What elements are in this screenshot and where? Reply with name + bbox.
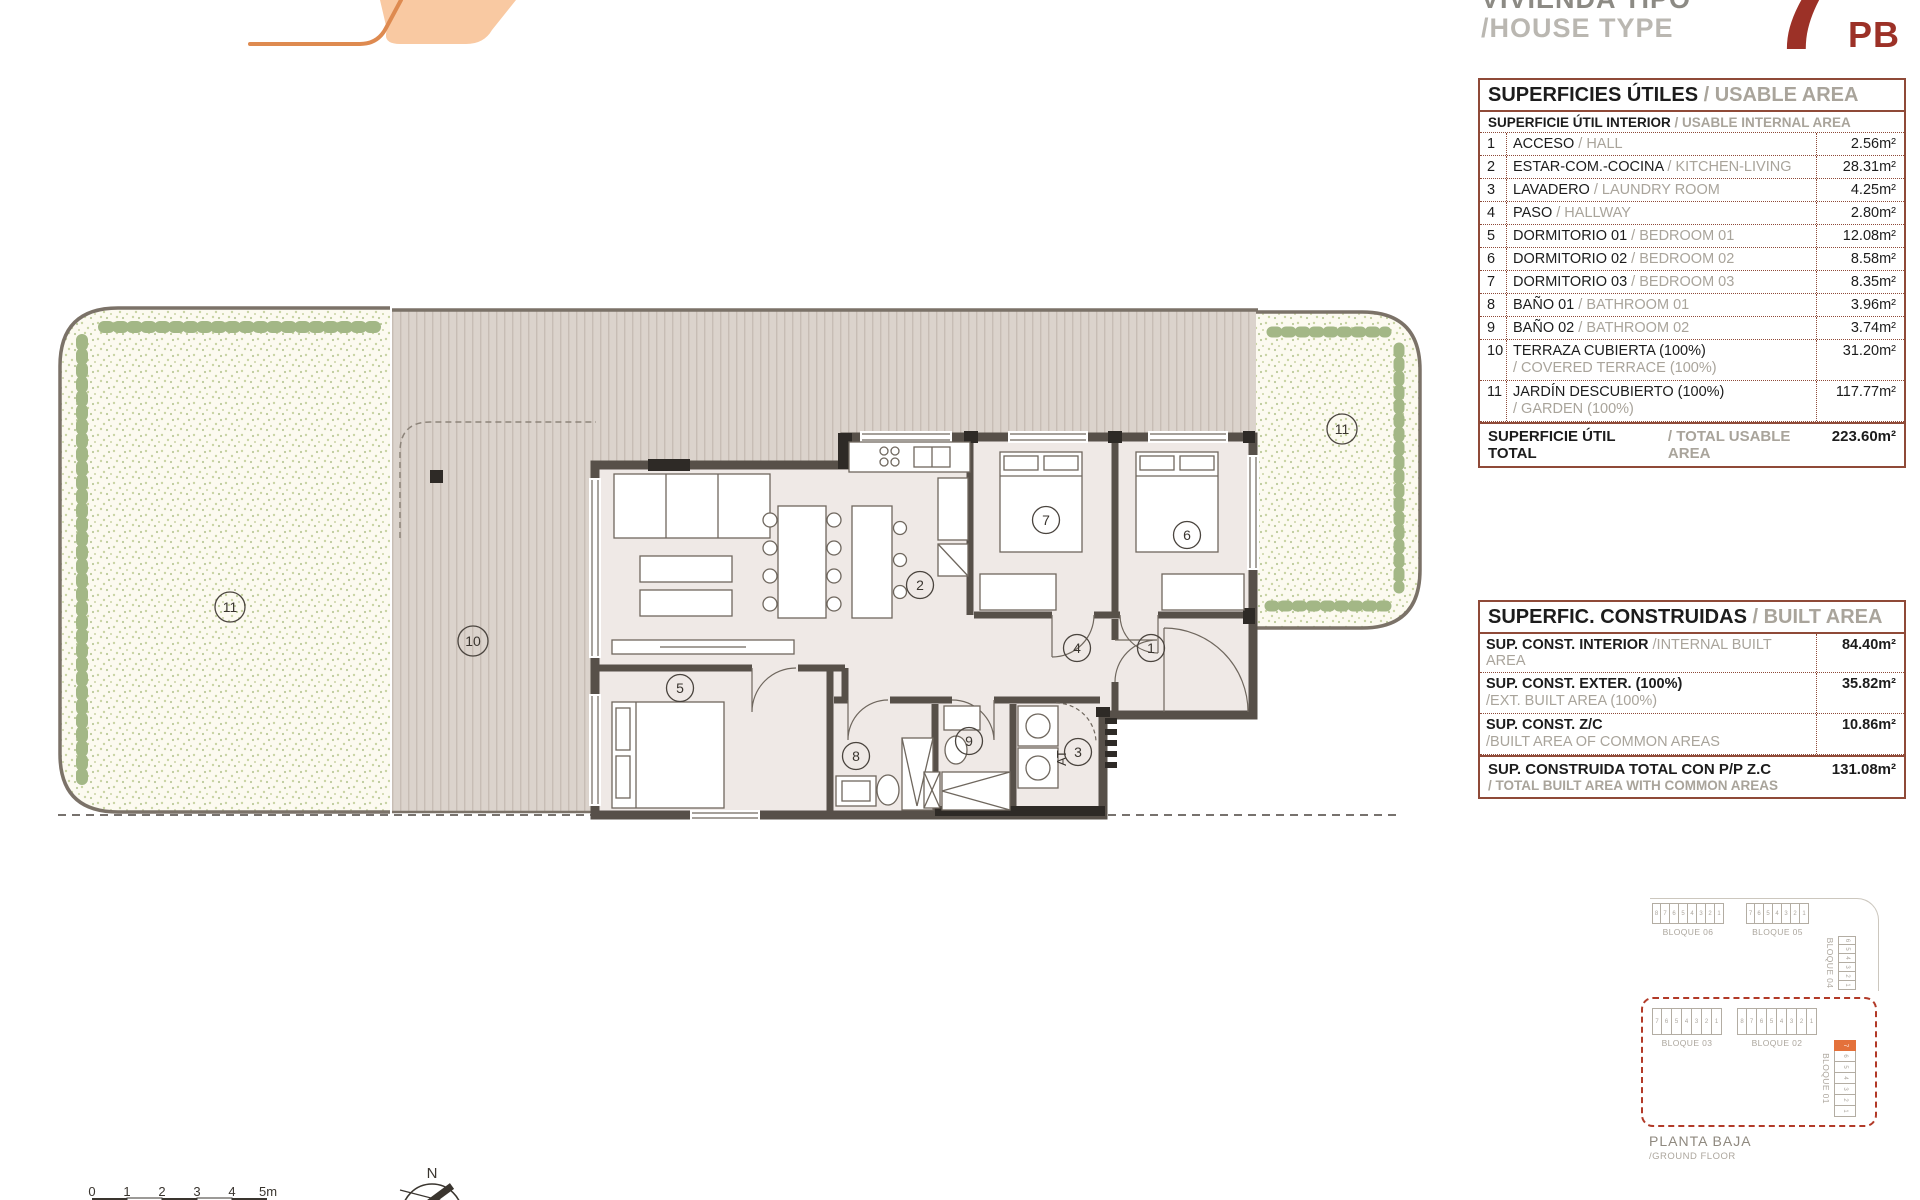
keyplan-bloque-01: 7654321 BLOQUE 01	[1821, 1040, 1856, 1117]
keyplan-unit-cell: 2	[1834, 1095, 1856, 1106]
keyplan-unit-cell: 7	[1747, 1008, 1757, 1035]
table-row: 7DORMITORIO 03 / BEDROOM 038.35m²	[1480, 271, 1904, 294]
keyplan-unit-cell: 4	[1773, 903, 1782, 924]
toilet-8	[877, 775, 899, 805]
sofa	[614, 474, 770, 538]
keyplan-unit-cell: 8	[1652, 903, 1661, 924]
keyplan-bloque-02: 87654321 BLOQUE 02	[1737, 1008, 1817, 1048]
keyplan-unit-cell: 6	[1662, 1008, 1672, 1035]
svg-text:5m: 5m	[259, 1184, 277, 1199]
keyplan-unit-cell: 2	[1706, 903, 1715, 924]
svg-text:4: 4	[1073, 640, 1081, 656]
usable-area-table: SUPERFICIES ÚTILES / USABLE AREA SUPERFI…	[1478, 78, 1906, 468]
keyplan-unit-cell: 6	[1757, 1008, 1767, 1035]
svg-text:7: 7	[1042, 512, 1050, 528]
step-hatch	[1105, 762, 1117, 768]
keyplan-unit-cell: 7	[1652, 1008, 1662, 1035]
keyplan-unit-cell: 1	[1800, 903, 1809, 924]
keyplan-unit-cell: 3	[1834, 1084, 1856, 1095]
hob-burner	[880, 447, 888, 455]
keyplan-unit-cell: 3	[1692, 1008, 1702, 1035]
table-row: SUP. CONST. EXTER. (100%)/EXT. BUILT ARE…	[1480, 673, 1904, 714]
keyplan-unit-cell: 7	[1661, 903, 1670, 924]
keyplan-unit-cell: 2	[1702, 1008, 1712, 1035]
svg-text:9: 9	[965, 733, 973, 749]
step-hatch	[1105, 718, 1117, 724]
svg-text:11: 11	[1335, 421, 1350, 437]
garden-right	[1256, 312, 1420, 628]
keyplan-unit-cell: 3	[1697, 903, 1706, 924]
keyplan-floor-label-es: PLANTA BAJA	[1649, 1133, 1752, 1149]
keyplan-unit-cell: 4	[1834, 1073, 1856, 1084]
keyplan-unit-cell: 2	[1797, 1008, 1807, 1035]
built-total-row: SUP. CONSTRUIDA TOTAL CON P/P Z.C131.08m…	[1480, 755, 1904, 797]
dwelling: AT	[589, 431, 1259, 820]
keyplan-unit-cell: 6	[1755, 903, 1764, 924]
table-row: SUP. CONST. Z/C/BUILT AREA OF COMMON ARE…	[1480, 714, 1904, 755]
usable-total-row: SUPERFICIE ÚTIL TOTAL/ TOTAL USABLE AREA…	[1480, 422, 1904, 466]
keyplan-unit-cell: 4	[1838, 954, 1856, 963]
shower-9	[942, 772, 1010, 810]
keyplan-unit-cell: 1	[1834, 1106, 1856, 1117]
wardrobe-7	[980, 574, 1056, 610]
table-row: 2ESTAR-COM.-COCINA / KITCHEN-LIVING28.31…	[1480, 156, 1904, 179]
table-row: 5DORMITORIO 01 / BEDROOM 0112.08m²	[1480, 225, 1904, 248]
keyplan-unit-cell: 5	[1672, 1008, 1682, 1035]
table-row: 8BAÑO 01 / BATHROOM 013.96m²	[1480, 294, 1904, 317]
keyplan-unit-cell: 4	[1777, 1008, 1787, 1035]
svg-text:5: 5	[676, 680, 684, 696]
keyplan-bloque-04: 654321 BLOQUE 04	[1825, 936, 1856, 990]
svg-text:2: 2	[916, 577, 924, 593]
keyplan-unit-cell: 7	[1834, 1040, 1856, 1051]
table-row: 10TERRAZA CUBIERTA (100%)/ COVERED TERRA…	[1480, 340, 1904, 381]
svg-text:4: 4	[228, 1184, 235, 1199]
keyplan-unit-cell: 1	[1712, 1008, 1722, 1035]
svg-text:11: 11	[223, 599, 238, 615]
built-area-table: SUPERFIC. CONSTRUIDAS / BUILT AREA SUP. …	[1478, 600, 1906, 799]
table-row: 3LAVADERO / LAUNDRY ROOM4.25m²	[1480, 179, 1904, 202]
svg-text:8: 8	[852, 748, 860, 764]
house-type-number: 7	[1768, 0, 1841, 70]
step-hatch	[1105, 729, 1117, 735]
svg-text:1: 1	[1147, 640, 1155, 656]
svg-text:1: 1	[123, 1184, 130, 1199]
tall-units	[938, 478, 968, 540]
table-row: 9BAÑO 02 / BATHROOM 023.74m²	[1480, 317, 1904, 340]
pergola-post	[430, 470, 443, 483]
keyplan-unit-cell: 4	[1688, 903, 1697, 924]
floor-code: PB	[1848, 14, 1900, 56]
keyplan-unit-cell: 5	[1764, 903, 1773, 924]
sink-9	[944, 706, 980, 730]
keyplan-unit-cell: 5	[1834, 1062, 1856, 1073]
svg-text:3: 3	[193, 1184, 200, 1199]
garden-left	[60, 308, 390, 812]
plan-sheet: AT 1 2 3 4 5 6 7 8 9 10 11 11 0 1 2 3 4 …	[0, 0, 1920, 1200]
keyplan-unit-cell: 5	[1838, 945, 1856, 954]
hob-burner	[880, 458, 888, 466]
dining-table	[778, 506, 826, 618]
scale-bar: 0 1 2 3 4 5m	[88, 1184, 277, 1200]
table-row: SUP. CONST. INTERIOR /INTERNAL BUILT ARE…	[1480, 634, 1904, 673]
usable-table-subtitle: SUPERFICIE ÚTIL INTERIOR / USABLE INTERN…	[1480, 112, 1904, 133]
logo	[250, 0, 516, 44]
keyplan-unit-cell: 3	[1782, 903, 1791, 924]
keyplan-unit-cell: 2	[1791, 903, 1800, 924]
keyplan-unit-cell: 6	[1834, 1051, 1856, 1062]
keyplan-floor-label-en: /GROUND FLOOR	[1649, 1151, 1736, 1162]
built-table-title: SUPERFIC. CONSTRUIDAS / BUILT AREA	[1480, 602, 1904, 634]
coffee-table	[640, 556, 732, 582]
kitchen-island	[852, 506, 892, 618]
keyplan-unit-cell: 7	[1746, 903, 1755, 924]
svg-text:3: 3	[1074, 744, 1082, 760]
svg-text:6: 6	[1183, 527, 1191, 543]
north-label: N	[427, 1165, 438, 1182]
keyplan-unit-cell: 1	[1807, 1008, 1817, 1035]
step-hatch	[1105, 740, 1117, 746]
keyplan-unit-cell: 3	[1787, 1008, 1797, 1035]
svg-text:10: 10	[465, 633, 481, 649]
keyplan-unit-cell: 6	[1838, 936, 1856, 945]
house-type-title-en: /HOUSE TYPE	[1481, 13, 1674, 44]
svg-text:0: 0	[88, 1184, 95, 1199]
keyplan-bloque-05: 7654321 BLOQUE 05	[1746, 903, 1809, 937]
svg-text:2: 2	[158, 1184, 165, 1199]
table-row: 1ACCESO / HALL2.56m²	[1480, 133, 1904, 156]
hob-burner	[891, 447, 899, 455]
keyplan-unit-cell: 8	[1737, 1008, 1747, 1035]
keyplan-unit-cell: 3	[1838, 963, 1856, 972]
table-row: 11JARDÍN DESCUBIERTO (100%)/ GARDEN (100…	[1480, 381, 1904, 422]
step-hatch	[1105, 751, 1117, 757]
keyplan-unit-cell: 5	[1679, 903, 1688, 924]
kitchen-counter	[849, 442, 970, 472]
keyplan-unit-cell: 2	[1838, 972, 1856, 981]
wardrobe-6	[1162, 574, 1244, 610]
usable-table-title: SUPERFICIES ÚTILES / USABLE AREA	[1480, 80, 1904, 112]
keyplan-unit-cell: 4	[1682, 1008, 1692, 1035]
keyplan-unit-cell: 1	[1715, 903, 1724, 924]
compass: N	[400, 1165, 462, 1200]
keyplan-unit-cell: 1	[1838, 981, 1856, 990]
table-row: 4PASO / HALLWAY2.80m²	[1480, 202, 1904, 225]
keyplan-bloque-06: 87654321 BLOQUE 06	[1652, 903, 1724, 937]
keyplan-unit-cell: 5	[1767, 1008, 1777, 1035]
table-row: 6DORMITORIO 02 / BEDROOM 028.58m²	[1480, 248, 1904, 271]
keyplan-bloque-03: 7654321 BLOQUE 03	[1652, 1008, 1722, 1048]
keyplan-unit-cell: 6	[1670, 903, 1679, 924]
at-label: AT	[1054, 750, 1069, 766]
coffee-table	[640, 590, 732, 616]
hob-burner	[891, 458, 899, 466]
